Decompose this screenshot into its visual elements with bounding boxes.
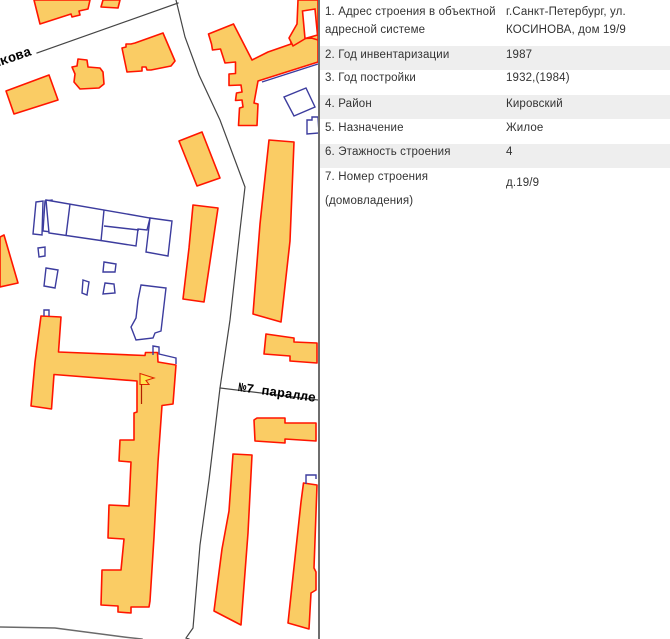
svg-text:№7 паралле: №7 паралле: [237, 380, 317, 406]
svg-text:икова: икова: [0, 45, 34, 72]
